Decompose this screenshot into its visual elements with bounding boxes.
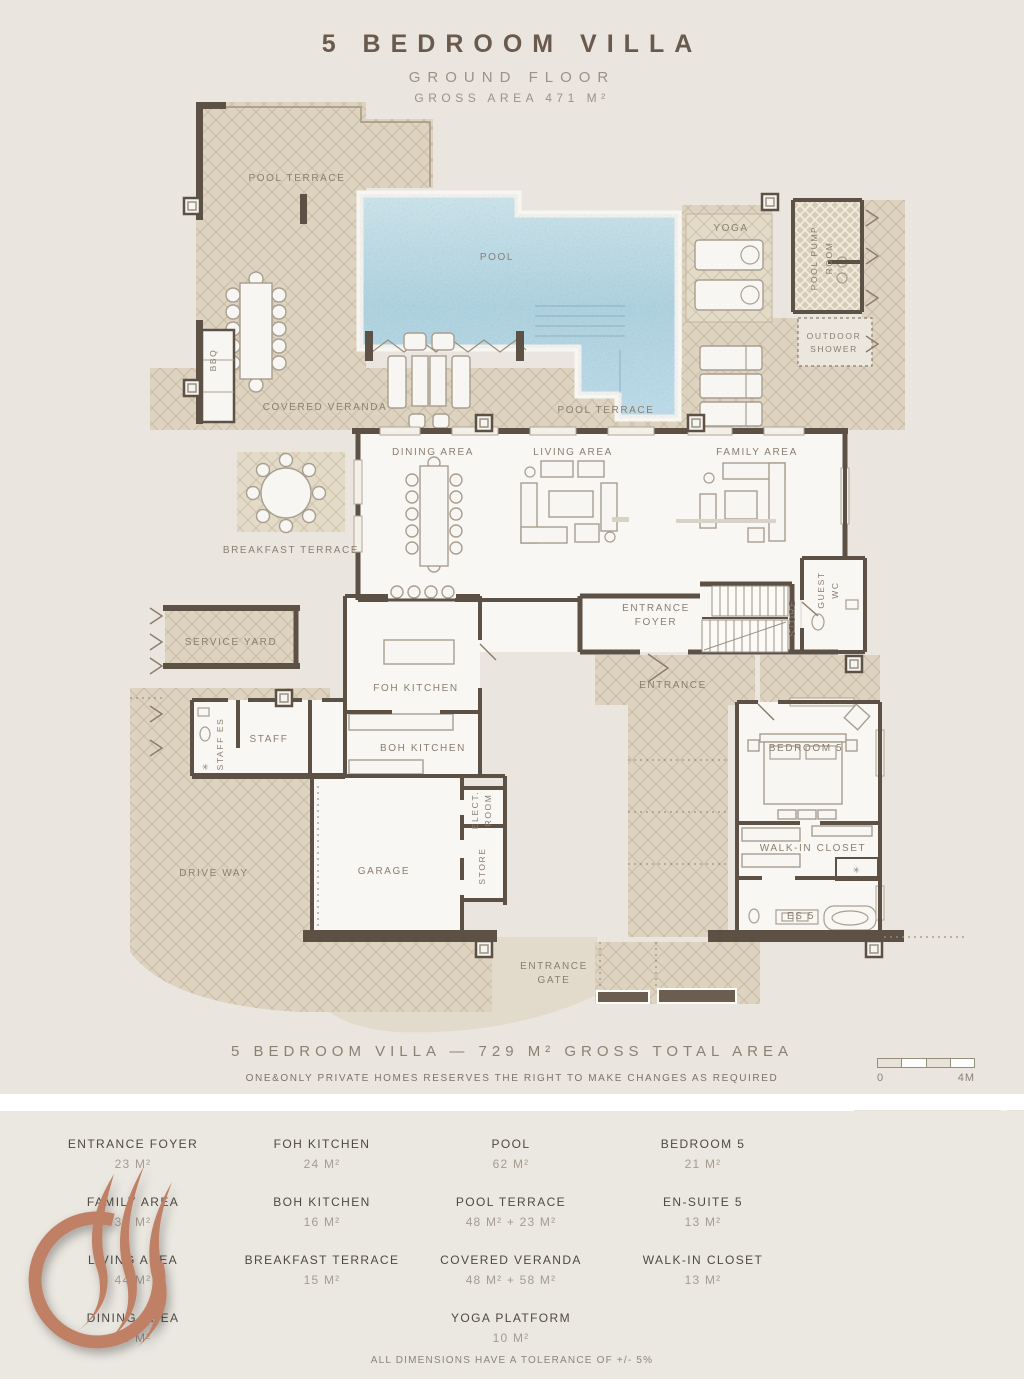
legend-column-3: POOL 62 M² POOL TERRACE 48 M² + 23 M² CO… (411, 1137, 611, 1369)
living-area-label: LIVING AREA (533, 447, 613, 458)
scale-start: 0 (877, 1072, 884, 1084)
legend-name: POOL TERRACE (411, 1195, 611, 1209)
legend-name: YOGA PLATFORM (411, 1311, 611, 1325)
guest-wc-label-1: GUEST (816, 571, 826, 608)
legend-name: POOL (411, 1137, 611, 1151)
guest-wc-label-2: WC (830, 581, 840, 598)
legend-item: BREAKFAST TERRACE 15 M² (222, 1253, 422, 1292)
bbq-counter (202, 330, 234, 422)
yoga-label: YOGA (713, 223, 748, 234)
pool-label: POOL (480, 252, 514, 263)
separator-band (0, 1094, 1024, 1111)
staff-es-label: STAFF ES (215, 718, 225, 771)
gross-total-line: 5 BEDROOM VILLA — 729 M² GROSS TOTAL ARE… (0, 1043, 1024, 1060)
legend-item: BOH KITCHEN 16 M² (222, 1195, 422, 1234)
outdoor-shower-box (798, 318, 872, 366)
legend-area: 62 M² (411, 1157, 611, 1171)
legend-area: 16 M² (222, 1215, 422, 1229)
pump-room-label-2: ROOM (824, 242, 834, 275)
disclaimer-line: ONE&ONLY PRIVATE HOMES RESERVES THE RIGH… (0, 1073, 1024, 1084)
service-yard-label: SERVICE YARD (185, 637, 278, 648)
gate-bars (597, 989, 736, 1003)
legend-item: BEDROOM 5 21 M² (603, 1137, 803, 1176)
family-area-label: FAMILY AREA (716, 447, 798, 458)
staircase (702, 586, 788, 652)
legend-item: YOGA PLATFORM 10 M² (411, 1311, 611, 1350)
legend-item: FOH KITCHEN 24 M² (222, 1137, 422, 1176)
shower-asterisk-walkin: ✳ (853, 865, 862, 875)
pump-room-label-1: POOL PUMP (809, 226, 819, 291)
walk-in-closet-label: WALK-IN CLOSET (760, 843, 867, 854)
covered-veranda-label: COVERED VERANDA (263, 402, 388, 413)
legend-item: WALK-IN CLOSET 13 M² (603, 1253, 803, 1292)
drive-way-label: DRIVE WAY (179, 868, 248, 879)
elect-room-label-1: ELECT. (470, 791, 480, 829)
legend-column-2: FOH KITCHEN 24 M² BOH KITCHEN 16 M² BREA… (222, 1137, 422, 1311)
legend-area: 24 M² (222, 1157, 422, 1171)
legend-area: 15 M² (222, 1273, 422, 1287)
legend-area: 10 M² (411, 1331, 611, 1345)
legend-name: BOH KITCHEN (222, 1195, 422, 1209)
legend-name: EN-SUITE 5 (603, 1195, 803, 1209)
legend-item: COVERED VERANDA 48 M² + 58 M² (411, 1253, 611, 1292)
entrance-foyer-label-2: FOYER (635, 617, 677, 628)
entrance-label: ENTRANCE (639, 680, 707, 691)
scale-bar-graphic (877, 1058, 975, 1068)
outdoor-shower-label-1: OUTDOOR (807, 331, 862, 341)
dining-area-label: DINING AREA (392, 447, 474, 458)
flame-circle-icon (35, 1166, 172, 1348)
floor-plan: POOL TERRACE POOL YOGA POOL PUMP ROOM OU… (0, 0, 1024, 1040)
scale-end: 4M (958, 1072, 975, 1084)
store-upper-label: STORE (787, 599, 797, 636)
foh-kitchen-label: FOH KITCHEN (373, 683, 458, 694)
legend-item: EN-SUITE 5 13 M² (603, 1195, 803, 1234)
legend-name: FOH KITCHEN (222, 1137, 422, 1151)
legend-name: BREAKFAST TERRACE (222, 1253, 422, 1267)
bedroom5-label: BEDROOM 5 (769, 743, 843, 754)
garage-label: GARAGE (358, 866, 410, 877)
legend-name: COVERED VERANDA (411, 1253, 611, 1267)
pool-terrace-top-label: POOL TERRACE (249, 173, 346, 184)
bbq-label: BBQ (208, 349, 218, 372)
legend-column-4: BEDROOM 5 21 M² EN-SUITE 5 13 M² WALK-IN… (603, 1137, 803, 1311)
elect-room-label-2: ROOM (483, 794, 493, 827)
entrance-foyer-label-1: ENTRANCE (622, 603, 690, 614)
legend-area: 13 M² (603, 1273, 803, 1287)
shower-asterisk-staff: ✳ (202, 762, 211, 772)
legend-item: POOL TERRACE 48 M² + 23 M² (411, 1195, 611, 1234)
scale-bar: 0 4M (877, 1058, 975, 1084)
store-lower-label: STORE (477, 847, 487, 884)
es5-label: ES 5 (787, 911, 815, 922)
staff-label: STAFF (250, 734, 289, 745)
outdoor-shower-label-2: SHOWER (810, 344, 858, 354)
entrance-gate-label-2: GATE (538, 975, 571, 986)
legend-area: 48 M² + 58 M² (411, 1273, 611, 1287)
sun-loungers (700, 346, 762, 426)
breakfast-terrace-label: BREAKFAST TERRACE (223, 545, 359, 556)
pool-terrace-right-label: POOL TERRACE (558, 405, 655, 416)
legend-area: 21 M² (603, 1157, 803, 1171)
breakfast-table-set (247, 454, 326, 533)
legend-area: 48 M² + 23 M² (411, 1215, 611, 1229)
legend-area: 13 M² (603, 1215, 803, 1229)
legend-item: POOL 62 M² (411, 1137, 611, 1176)
brand-logo (10, 1164, 250, 1379)
legend-name: WALK-IN CLOSET (603, 1253, 803, 1267)
legend-name: ENTRANCE FOYER (33, 1137, 233, 1151)
entrance-gate-label-1: ENTRANCE (520, 961, 588, 972)
legend-name: BEDROOM 5 (603, 1137, 803, 1151)
boh-kitchen-label: BOH KITCHEN (380, 743, 466, 754)
